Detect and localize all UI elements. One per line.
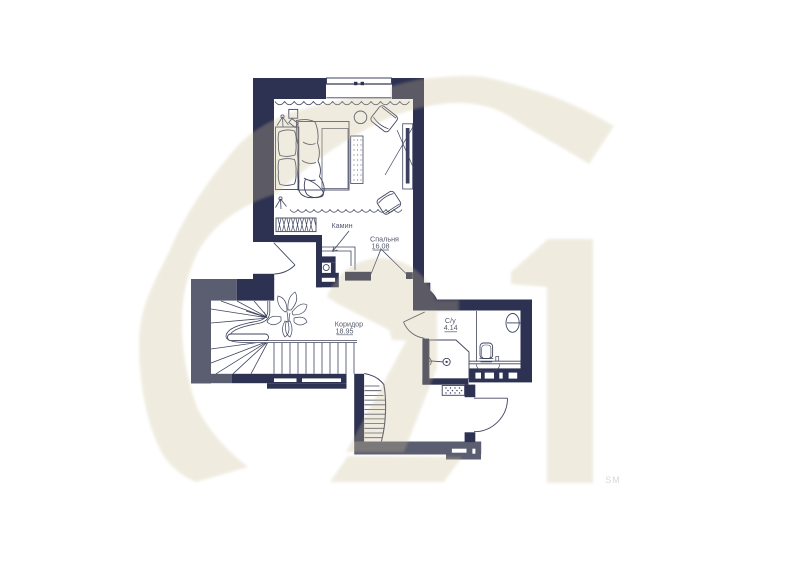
svg-text:4.14: 4.14 <box>444 323 458 332</box>
svg-text:Камин: Камин <box>331 221 352 230</box>
svg-text:SM: SM <box>605 475 621 485</box>
svg-text:16.08: 16.08 <box>372 242 390 251</box>
svg-text:18.95: 18.95 <box>336 327 354 336</box>
